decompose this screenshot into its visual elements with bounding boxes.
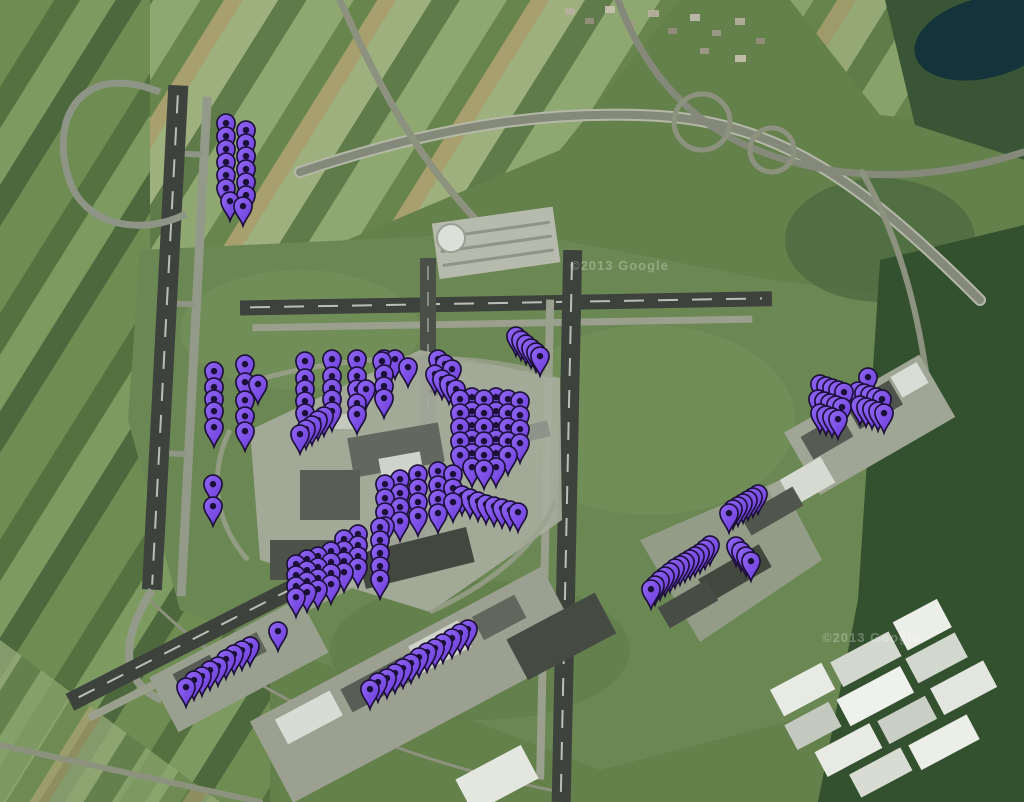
map-pin[interactable] [474,459,495,490]
map-pin[interactable] [530,346,551,377]
map-pin[interactable] [290,424,311,455]
map-pin[interactable] [741,551,762,582]
map-pin[interactable] [286,587,307,618]
map-pin[interactable] [204,417,225,448]
marker-layer [0,0,1024,802]
map-pin[interactable] [508,502,529,533]
map-pin[interactable] [347,404,368,435]
map-pin[interactable] [360,679,381,710]
map-pin[interactable] [235,421,256,452]
map-pin[interactable] [233,196,254,227]
map-pin[interactable] [203,496,224,527]
map-pin[interactable] [374,388,395,419]
map-pin[interactable] [176,677,197,708]
map-pin[interactable] [370,569,391,600]
map-pin[interactable] [428,503,449,534]
map-pin[interactable] [398,357,419,388]
map-pin[interactable] [828,409,849,440]
map-pin[interactable] [268,621,289,652]
map-pin[interactable] [719,503,740,534]
map-pin[interactable] [408,506,429,537]
map-pin[interactable] [641,579,662,610]
map-pin[interactable] [874,403,895,434]
map-canvas[interactable]: ©2013 Google ©2013 Google [0,0,1024,802]
